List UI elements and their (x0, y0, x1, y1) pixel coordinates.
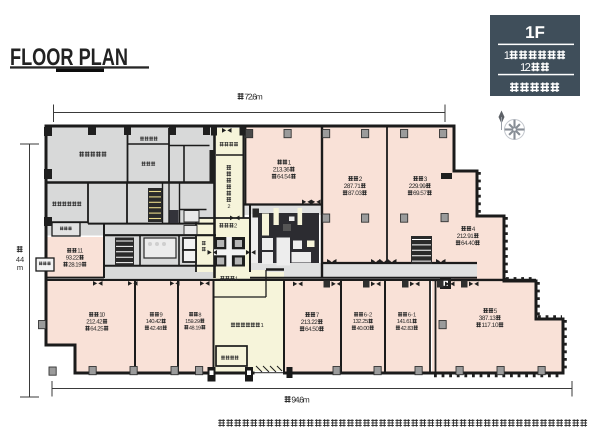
svg-text:28.19: 28.19 (68, 262, 82, 269)
svg-text:1F: 1F (525, 23, 545, 42)
svg-text:132.25: 132.25 (353, 318, 369, 325)
svg-text:9: 9 (160, 312, 163, 319)
svg-text:40.00: 40.00 (357, 325, 371, 332)
svg-text:64.40: 64.40 (461, 240, 475, 247)
svg-text:117.10: 117.10 (482, 322, 499, 329)
svg-text:287.71: 287.71 (344, 183, 361, 190)
svg-text:213.22: 213.22 (301, 319, 318, 326)
svg-text:42.48: 42.48 (150, 325, 164, 332)
svg-text:4: 4 (472, 226, 476, 233)
svg-text:3: 3 (424, 176, 428, 183)
svg-text:387.13: 387.13 (479, 315, 496, 322)
svg-text:229.99: 229.99 (409, 183, 426, 190)
svg-text:12: 12 (520, 62, 531, 74)
svg-text:159.29: 159.29 (185, 319, 200, 325)
svg-text:64.54: 64.54 (277, 174, 291, 181)
svg-text:1: 1 (504, 50, 510, 62)
svg-text:48.19: 48.19 (189, 325, 201, 331)
svg-text:42.83: 42.83 (401, 325, 415, 332)
svg-text:m: m (17, 263, 23, 272)
svg-text:69.57: 69.57 (413, 190, 427, 197)
svg-text:5: 5 (494, 308, 498, 315)
svg-text:140.42: 140.42 (146, 318, 162, 325)
svg-text:1: 1 (288, 159, 292, 166)
svg-text:2: 2 (228, 204, 231, 210)
svg-text:64.25: 64.25 (90, 326, 104, 333)
svg-text:94.6m: 94.6m (291, 394, 309, 404)
svg-text:7: 7 (316, 312, 320, 319)
svg-text:64.50: 64.50 (305, 326, 319, 333)
svg-text:2: 2 (359, 176, 363, 183)
svg-text:213.36: 213.36 (273, 166, 290, 173)
svg-text:6-1: 6-1 (408, 312, 417, 319)
svg-text:6-2: 6-2 (364, 312, 373, 319)
svg-text:212.91: 212.91 (457, 233, 474, 240)
svg-text:8: 8 (198, 312, 201, 318)
svg-text:2: 2 (234, 223, 237, 230)
svg-text:1: 1 (261, 322, 264, 329)
svg-text:72.6m: 72.6m (244, 91, 262, 101)
svg-text:87.03: 87.03 (348, 190, 362, 197)
svg-text:141.61: 141.61 (397, 318, 413, 325)
svg-text:1: 1 (235, 276, 238, 283)
